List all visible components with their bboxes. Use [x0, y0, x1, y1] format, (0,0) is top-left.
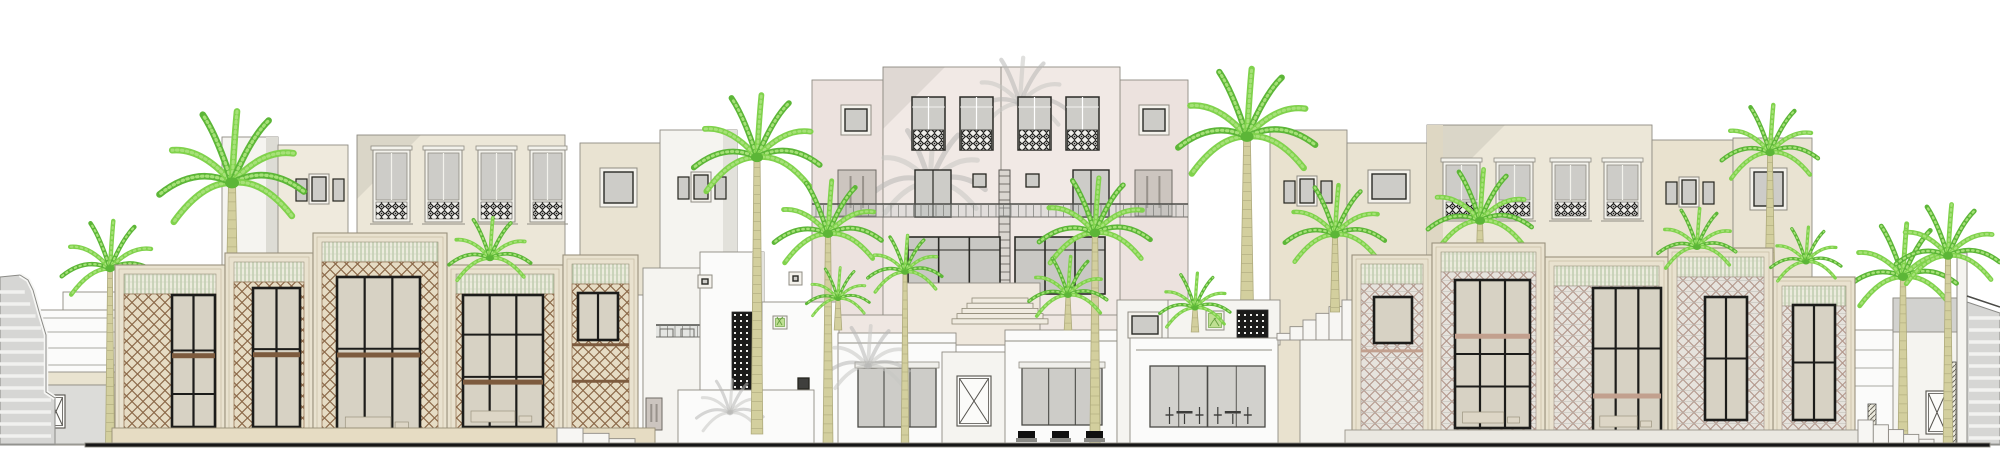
palm-tree-7-crown-center	[1240, 132, 1253, 142]
palm-tree-6-crown-center	[1090, 229, 1101, 237]
m1c-window-glass	[702, 279, 708, 284]
palm-tree-5-trunk	[901, 272, 909, 444]
a3-window-3	[475, 146, 518, 224]
right-stepped-mound-pylon	[1957, 253, 1967, 445]
villa-right-bay-3	[1545, 257, 1668, 443]
palm-tree-3-crown-center	[751, 153, 763, 163]
a2-window-cluster-big-glass	[312, 177, 326, 201]
b7-window-cluster-small-left	[1284, 181, 1295, 203]
street-bollards-1	[1052, 431, 1069, 438]
a5-window-cluster-small-left	[678, 177, 689, 199]
villa-right-terrace	[1345, 430, 1860, 444]
villa-right-steps-tread-3	[1873, 425, 1888, 444]
b9-window-3-grille	[1555, 202, 1586, 216]
pink-top-window-1-grille	[914, 130, 944, 150]
b9-window-3-head	[1550, 158, 1591, 162]
street-bollards-0	[1018, 431, 1035, 438]
villa-left-bay-3-trellis-band	[322, 242, 438, 262]
stair-flight-right-tread-0	[1277, 333, 1290, 340]
ground-band	[85, 443, 1990, 447]
villa-right-bay-3-window-glass	[1593, 288, 1661, 432]
b9-window-4-head	[1602, 158, 1643, 162]
villa-left-bay-5	[563, 255, 638, 443]
mid-block-m10-face	[1300, 340, 1358, 445]
villa-right-bay-1	[1352, 255, 1432, 443]
b9-window-2	[1493, 158, 1536, 221]
villa-right-steps-tread-2	[1888, 430, 1903, 444]
b8-window	[1368, 170, 1410, 203]
table-top	[1225, 411, 1241, 414]
villa-left-bay-3	[313, 233, 447, 443]
central-grand-steps-step-1	[967, 303, 1033, 308]
villa-right-bay-4	[1668, 248, 1773, 443]
a3-window-2-grille	[428, 202, 459, 219]
street-bollards-base-0	[1016, 438, 1037, 442]
villa-right-bay-2	[1432, 243, 1545, 443]
b9-window-4	[1601, 158, 1644, 221]
villa-left-bay-4-sofa	[471, 411, 515, 422]
a3-window-1	[370, 146, 413, 224]
palm-crown-3-crown-center	[1064, 292, 1072, 298]
villa-right-bay-2-sofa	[1463, 412, 1504, 423]
villa-right-bay-3-trellis-band	[1554, 266, 1659, 286]
villa-left-bay-3-floor-band	[337, 353, 420, 358]
m3-shadow-palm-crown-center	[864, 363, 872, 369]
m3-glass-door	[855, 362, 939, 427]
pink-wing-window-right-glass	[1143, 109, 1165, 131]
central-grand-steps-step-0	[972, 298, 1028, 303]
central-grand-steps-step-3	[957, 314, 1043, 319]
b9-window-1-head	[1441, 158, 1482, 162]
villa-right-bay-3-sofa	[1600, 416, 1637, 427]
palm-crown-3-trunk	[1064, 295, 1072, 330]
palm-crown-2-trunk	[834, 299, 842, 330]
stair-flight-right-tread-1	[1290, 327, 1303, 340]
pink-wing-window-left-glass	[845, 109, 867, 131]
villa-left-bay-3-sofa	[345, 417, 391, 428]
villa-right-bay-2-floor-band	[1455, 334, 1530, 339]
central-grand-steps-step-2	[962, 308, 1038, 313]
m1b-door	[646, 398, 662, 430]
villa-right-bay-2-side-table	[1508, 417, 1520, 423]
villa-right-steps-tread-4	[1858, 420, 1873, 444]
villa-left-bay-5-trellis-band	[572, 264, 629, 284]
dark-vent-window	[798, 378, 809, 389]
m7-window	[1128, 312, 1162, 338]
m1c-window-2	[789, 272, 802, 285]
villa-left-bay-4	[447, 265, 563, 443]
street-bollards-2	[1086, 431, 1103, 438]
b10-window-cluster-small-left	[1666, 182, 1677, 204]
palm-crown-7-crown-center	[1803, 259, 1810, 264]
palm-tree-2-crown-center	[225, 177, 239, 188]
villa-left-bay-2	[225, 253, 313, 443]
planter-window-1	[773, 316, 787, 329]
a3-window-3-grille	[481, 202, 512, 219]
b10-window-cluster	[1666, 177, 1714, 207]
central-grand-steps-step-4	[952, 319, 1048, 324]
b8-window-glass	[1372, 174, 1406, 199]
b9-window-2-head	[1494, 158, 1535, 162]
pink-top-window-2-grille	[962, 130, 992, 150]
villa-left-bay-4-trellis-band	[456, 274, 554, 294]
a3-window-1-head	[371, 146, 412, 150]
villa-left-bay-4-window-glass	[463, 295, 543, 427]
villa-left-bay-2-trellis-band	[234, 262, 304, 282]
palm-crown-4-trunk	[1191, 308, 1199, 332]
palm-tree-11-crown-center	[1943, 252, 1953, 260]
b7-window-cluster-big-glass	[1300, 179, 1314, 203]
villa-left-bay-4-side-table	[519, 416, 532, 422]
a4-window	[600, 168, 637, 207]
ground-band-face	[85, 443, 1990, 447]
b10-window-cluster-big-glass	[1682, 180, 1696, 204]
cafe-storefront	[1150, 366, 1265, 427]
villa-right-bay-5-trellis-band	[1782, 286, 1846, 306]
a3-window-3-head	[476, 146, 517, 150]
palm-tree-9-crown-center	[1475, 217, 1485, 225]
a3-window-4-head	[528, 146, 567, 150]
b10-window-cluster-small-right	[1703, 182, 1714, 204]
a3-window-1-grille	[376, 202, 407, 219]
palm-tree-8-crown-center	[1330, 231, 1340, 239]
palm-tree-4-crown-center	[823, 230, 833, 238]
pink-top-window-3	[1018, 97, 1051, 150]
pink-small-window-right	[1026, 174, 1039, 187]
street-bollards-base-1	[1050, 438, 1071, 442]
pink-top-window-2	[960, 97, 993, 150]
elevation-canvas	[0, 0, 2000, 457]
palm-crown-2-crown-center	[835, 296, 841, 301]
right-stepped-mound-mass	[1967, 302, 2000, 445]
pink-top-window-3-grille	[1020, 130, 1050, 150]
a3-window-2	[422, 146, 465, 224]
pink-top-window-4-grille	[1068, 130, 1098, 150]
pink-wing-window-right	[1139, 105, 1169, 135]
mid-block-m10	[1300, 340, 1358, 445]
table-top	[1177, 411, 1193, 414]
stair-flight-right-tread-2	[1303, 320, 1316, 340]
pink-wing-window-left	[841, 105, 871, 135]
palm-crown-5-crown-center	[1693, 244, 1701, 250]
villa-right-bay-1-trellis-band	[1361, 264, 1423, 284]
villa-left-bay-1	[115, 265, 225, 443]
pink-top-window-4	[1066, 97, 1099, 150]
villa-right-bay-5	[1773, 277, 1855, 443]
villa-left-bay-4-floor-band	[463, 380, 543, 385]
palm-crown-1-crown-center	[486, 255, 494, 261]
villa-right-bay-1-window-glass	[1374, 297, 1412, 343]
villa-left-steps-tread-2	[557, 428, 583, 444]
villa-right-bay-3-floor-band	[1593, 394, 1661, 399]
m4-service-door	[957, 376, 991, 426]
m1c-window-2-glass	[793, 276, 798, 281]
parapet-shadow-palm-crown-center	[727, 410, 733, 415]
palm-tree-1-crown-center	[105, 265, 114, 272]
a2-window-cluster-small-right	[333, 179, 344, 201]
villa-left-steps-tread-1	[583, 433, 609, 444]
b9-window-3	[1549, 158, 1592, 221]
palm-crown-6-crown-center	[1765, 149, 1774, 156]
b9-window-4-grille	[1607, 202, 1638, 216]
villa-right-bay-3-side-table	[1641, 421, 1652, 427]
a3-window-4-grille	[533, 202, 562, 219]
a3-window-4	[527, 146, 568, 224]
m1b-door-leaf	[646, 398, 662, 430]
palm-tree-5-crown-center	[901, 269, 908, 275]
elevation-stage	[0, 0, 2000, 457]
pink-top-window-1	[912, 97, 945, 150]
villa-right-bay-2-trellis-band	[1441, 252, 1536, 272]
m7-window-glass	[1132, 316, 1158, 334]
stair-flight-right-tread-3	[1316, 313, 1329, 340]
villa-left-bay-1-floor-band	[172, 353, 215, 358]
villa-right-bay-4-trellis-band	[1677, 257, 1764, 277]
villa-left-bay-2-floor-band	[253, 352, 300, 357]
villa-right-terrace-face	[1345, 430, 1860, 444]
palm-crown-4-crown-center	[1192, 305, 1199, 310]
pink-small-window-left	[973, 174, 986, 187]
villa-left-bay-1-trellis-band	[124, 274, 216, 294]
a3-window-2-head	[423, 146, 464, 150]
street-bollards-base-2	[1084, 438, 1105, 442]
street-bollards	[1016, 431, 1105, 442]
villa-left-bay-3-side-table	[395, 422, 408, 428]
m1c-window	[698, 275, 712, 288]
a4-window-glass	[604, 172, 633, 203]
